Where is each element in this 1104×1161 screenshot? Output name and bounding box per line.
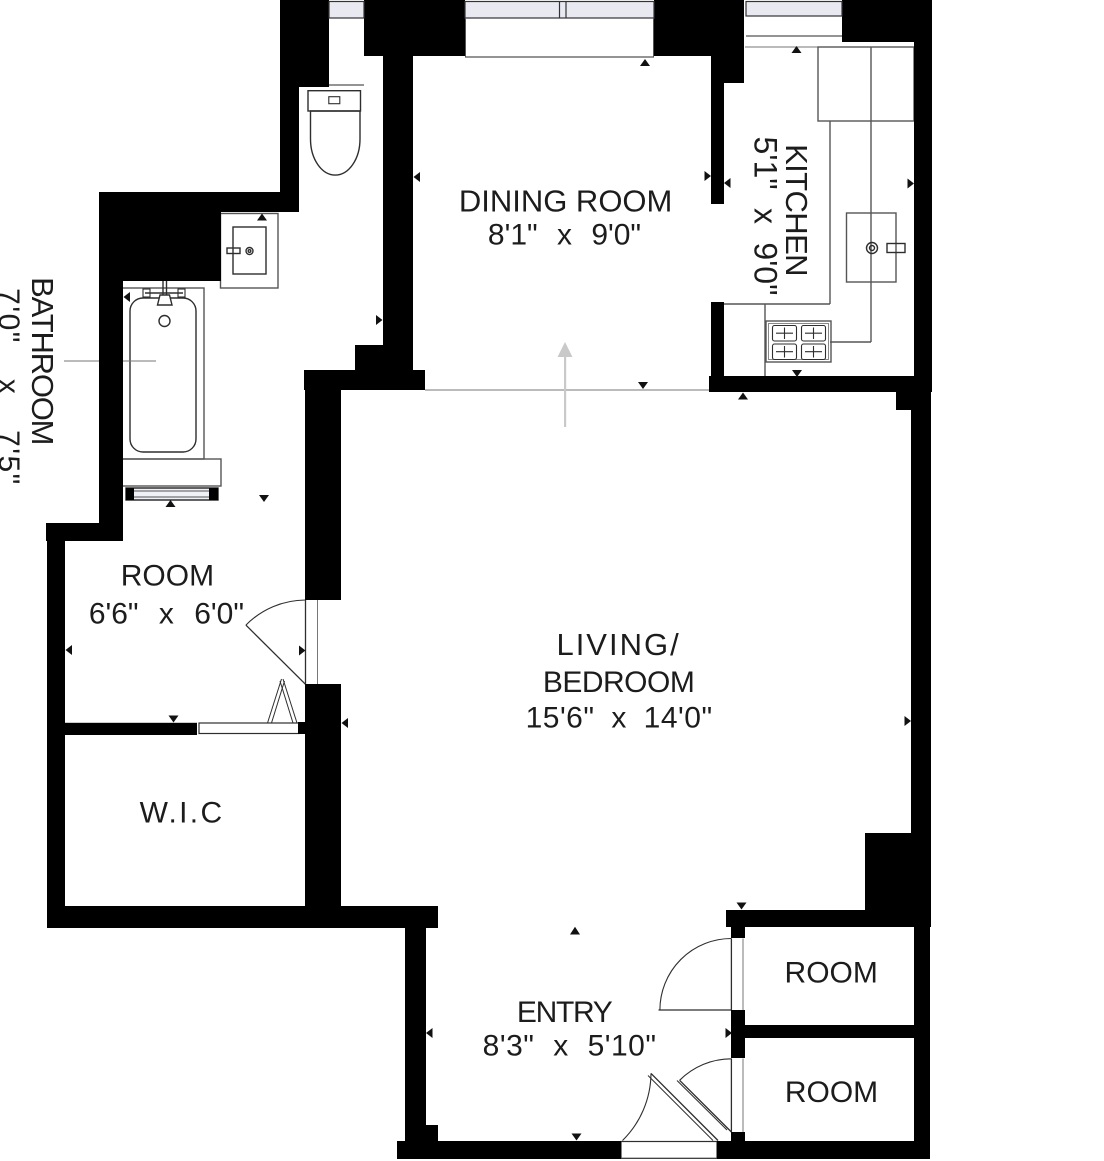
svg-text:ROOM: ROOM bbox=[121, 560, 214, 593]
svg-text:8'1" x 9'0": 8'1" x 9'0" bbox=[488, 219, 641, 252]
svg-text:7'0" x 7'5": 7'0" x 7'5" bbox=[0, 288, 25, 486]
svg-text:6'6" x 6'0": 6'6" x 6'0" bbox=[89, 598, 244, 631]
svg-text:LIVING/: LIVING/ bbox=[556, 627, 680, 662]
svg-text:ROOM: ROOM bbox=[785, 956, 878, 989]
svg-text:W.I.C: W.I.C bbox=[140, 797, 225, 830]
svg-text:BATHROOM: BATHROOM bbox=[25, 277, 60, 444]
svg-text:DINING ROOM: DINING ROOM bbox=[459, 184, 673, 219]
svg-text:8'3" x 5'10": 8'3" x 5'10" bbox=[483, 1030, 657, 1063]
svg-text:ENTRY: ENTRY bbox=[517, 996, 613, 1029]
svg-text:ROOM: ROOM bbox=[785, 1076, 878, 1109]
svg-text:5'1" x 9'0": 5'1" x 9'0" bbox=[748, 137, 784, 296]
svg-text:15'6" x 14'0": 15'6" x 14'0" bbox=[526, 702, 713, 735]
svg-text:BEDROOM: BEDROOM bbox=[543, 666, 695, 699]
